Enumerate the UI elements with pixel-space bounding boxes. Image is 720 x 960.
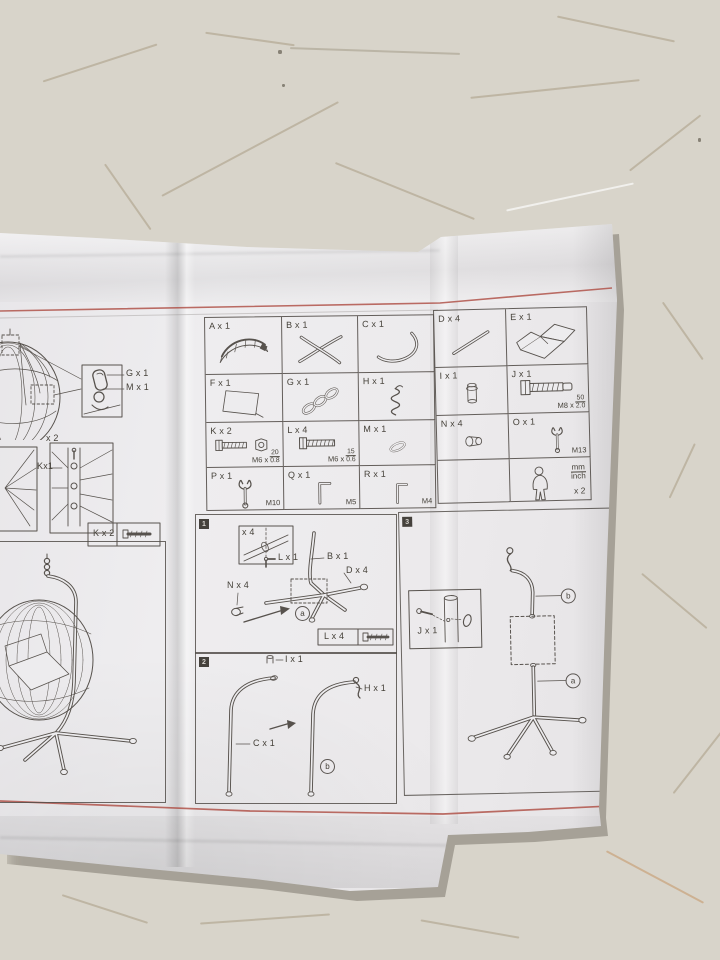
part-cell-empty [438, 459, 511, 504]
part-cell-f: F x 1 [206, 374, 284, 423]
part-cell-i: I x 1 [435, 366, 508, 416]
part-d-icon [441, 323, 500, 362]
part-f-icon [214, 384, 274, 421]
part-cell-c: C x 1 [358, 315, 435, 373]
parts-table-right: D x 4 E x 1 I x 1 [433, 306, 592, 504]
part-q-icon [296, 472, 346, 511]
step2-label-c1: C x 1 [253, 739, 275, 749]
part-label: O x 1 [513, 417, 536, 428]
part-label: C x 1 [362, 319, 384, 329]
step1-panel: 1 [195, 514, 397, 654]
step2-diagram [196, 653, 396, 803]
part-label: D x 4 [438, 313, 460, 324]
part-cell-a: A x 1 [205, 317, 283, 375]
part-a-icon [212, 331, 274, 370]
part-p-icon [220, 473, 270, 512]
part-r-icon [374, 472, 420, 509]
photo-of-instruction-sheet: A x 1 B x 1 C x 1 [0, 0, 720, 960]
step1-label-l1: L x 1 [278, 553, 298, 563]
part-label: A x 1 [209, 321, 230, 331]
part-spec: M5 [346, 497, 357, 506]
assembled-chair-panel [0, 541, 166, 803]
floor-speck [698, 138, 701, 142]
part-spec: M10 [266, 498, 281, 507]
part-cell-h: H x 1 [359, 372, 436, 421]
part-cell-scale-figure: mminch x 2 [510, 457, 592, 502]
legend-k-x2: K x 2 [93, 529, 115, 539]
part-cell-g: G x 1 [283, 373, 360, 422]
part-c-icon [365, 329, 427, 368]
part-spec: M8 x 502.0 [557, 394, 585, 410]
step1-label-b1: B x 1 [327, 552, 349, 562]
part-cell-p: P x 1 M10 [207, 467, 285, 511]
step1-diagram [196, 515, 396, 653]
scale-qty: x 2 [574, 485, 586, 495]
hub-detail-diagram [0, 438, 165, 548]
step1-label-n4: N x 4 [227, 581, 249, 591]
part-e-icon [511, 319, 582, 363]
label-g-x1: G x 1 [126, 369, 149, 379]
part-cell-m: M x 1 [359, 420, 436, 466]
step3-diagram [399, 509, 617, 795]
part-spec: M4 [422, 496, 433, 505]
floor-speck [282, 84, 285, 87]
step1-legend-l4: L x 4 [324, 632, 344, 642]
part-h-icon [366, 382, 426, 419]
part-m-icon [369, 431, 425, 462]
parts-table-left: A x 1 B x 1 C x 1 [204, 314, 436, 511]
step2-label-i1: I x 1 [285, 655, 303, 665]
part-spec: M6 x 200.8 [252, 449, 280, 465]
part-cell-n: N x 4 [437, 414, 510, 461]
label-k-x1: Kx1 [37, 462, 53, 472]
part-cell-r: R x 1 M4 [360, 465, 437, 509]
floor-speck [278, 50, 282, 54]
step2-panel: 2 I x 1 H x 1 C x 1 [195, 652, 397, 804]
part-b-icon [289, 330, 351, 369]
label-x2: x 2 [46, 434, 59, 444]
step1-inset-qty: x 4 [242, 528, 255, 538]
part-cell-q: Q x 1 M5 [284, 466, 361, 510]
step2-label-h1: H x 1 [364, 684, 386, 694]
assembled-chair-diagram [0, 542, 165, 802]
part-g-icon [290, 383, 350, 420]
step2-circle-b: b [320, 759, 335, 774]
part-spec: M13 [572, 445, 587, 454]
label-m-x1: M x 1 [126, 383, 149, 393]
part-cell-o: O x 1 M13 [509, 412, 591, 459]
part-n-icon [447, 425, 498, 456]
part-label: B x 1 [286, 320, 308, 330]
part-cell-d: D x 4 [434, 309, 507, 368]
part-cell-e: E x 1 [506, 307, 588, 366]
part-spec: M6 x 150.6 [328, 448, 356, 464]
part-cell-b: B x 1 [282, 316, 359, 374]
part-cell-l: L x 4 M6 x 150.6 [283, 421, 360, 467]
step1-label-d4: D x 4 [346, 566, 368, 576]
step3-label-j1: J x 1 [417, 626, 437, 636]
step3-panel: 3 [398, 508, 618, 796]
person-icon [524, 464, 555, 503]
part-cell-k: K x 2 M6 x 200.8 [206, 422, 284, 468]
step1-circle-a: a [295, 606, 310, 621]
part-i-icon [443, 377, 500, 412]
part-cell-j: J x 1 M8 x 502.0 [507, 364, 589, 414]
unit-fraction: mminch [570, 463, 586, 481]
